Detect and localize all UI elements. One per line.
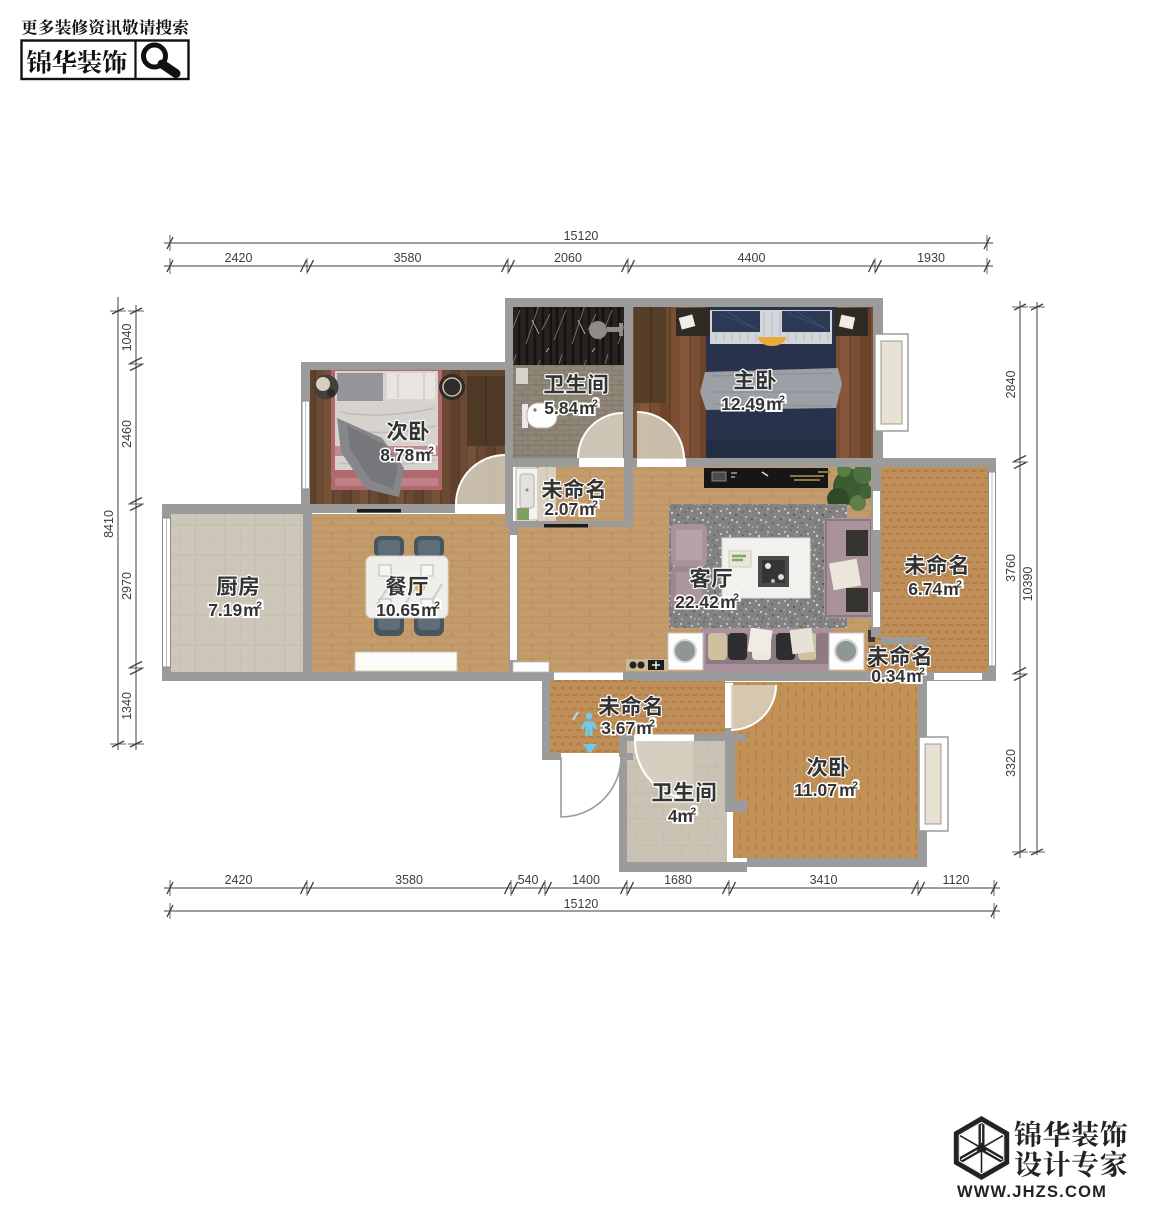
svg-text:3.67: 3.67 [601, 718, 635, 738]
svg-text:2: 2 [592, 499, 598, 511]
svg-text:2: 2 [733, 592, 739, 604]
svg-text:2: 2 [649, 718, 655, 730]
svg-text:WWW.JHZS.COM: WWW.JHZS.COM [957, 1183, 1107, 1201]
svg-text:2: 2 [428, 445, 434, 457]
svg-text:1040: 1040 [120, 324, 134, 352]
svg-text:2: 2 [852, 780, 858, 792]
svg-text:3760: 3760 [1004, 554, 1018, 582]
svg-text:2: 2 [779, 394, 785, 406]
svg-text:3320: 3320 [1004, 749, 1018, 777]
svg-text:2970: 2970 [120, 572, 134, 600]
svg-text:1340: 1340 [120, 692, 134, 720]
svg-text:1930: 1930 [917, 251, 945, 265]
svg-text:540: 540 [518, 873, 539, 887]
svg-text:0.34: 0.34 [871, 666, 905, 686]
svg-text:2: 2 [690, 806, 696, 818]
svg-text:3580: 3580 [394, 251, 422, 265]
svg-text:1120: 1120 [943, 873, 970, 887]
svg-text:8.78: 8.78 [380, 445, 414, 465]
svg-text:2420: 2420 [225, 251, 253, 265]
svg-text:1680: 1680 [664, 873, 692, 887]
svg-text:3580: 3580 [395, 873, 423, 887]
svg-text:5.84: 5.84 [544, 398, 578, 418]
svg-text:2420: 2420 [225, 873, 253, 887]
svg-text:2460: 2460 [120, 420, 134, 448]
svg-text:12.49: 12.49 [721, 394, 765, 414]
svg-text:3410: 3410 [810, 873, 838, 887]
svg-text:1400: 1400 [572, 873, 600, 887]
svg-text:6.74: 6.74 [908, 579, 942, 599]
svg-text:2: 2 [592, 398, 598, 410]
svg-text:2060: 2060 [554, 251, 582, 265]
svg-text:10390: 10390 [1021, 567, 1035, 602]
svg-text:22.42: 22.42 [675, 592, 719, 612]
svg-text:2: 2 [956, 579, 962, 591]
svg-text:2.07: 2.07 [544, 499, 578, 519]
svg-text:10.65: 10.65 [376, 600, 420, 620]
svg-text:15120: 15120 [564, 897, 599, 911]
svg-text:4400: 4400 [738, 251, 766, 265]
svg-text:8410: 8410 [102, 510, 116, 538]
svg-text:2840: 2840 [1004, 371, 1018, 399]
svg-text:2: 2 [256, 600, 262, 612]
svg-text:15120: 15120 [564, 229, 599, 243]
svg-text:7.19: 7.19 [208, 600, 242, 620]
svg-text:4: 4 [668, 806, 678, 826]
svg-text:2: 2 [919, 666, 925, 678]
svg-text:2: 2 [434, 600, 440, 612]
svg-text:11.07: 11.07 [794, 780, 837, 800]
